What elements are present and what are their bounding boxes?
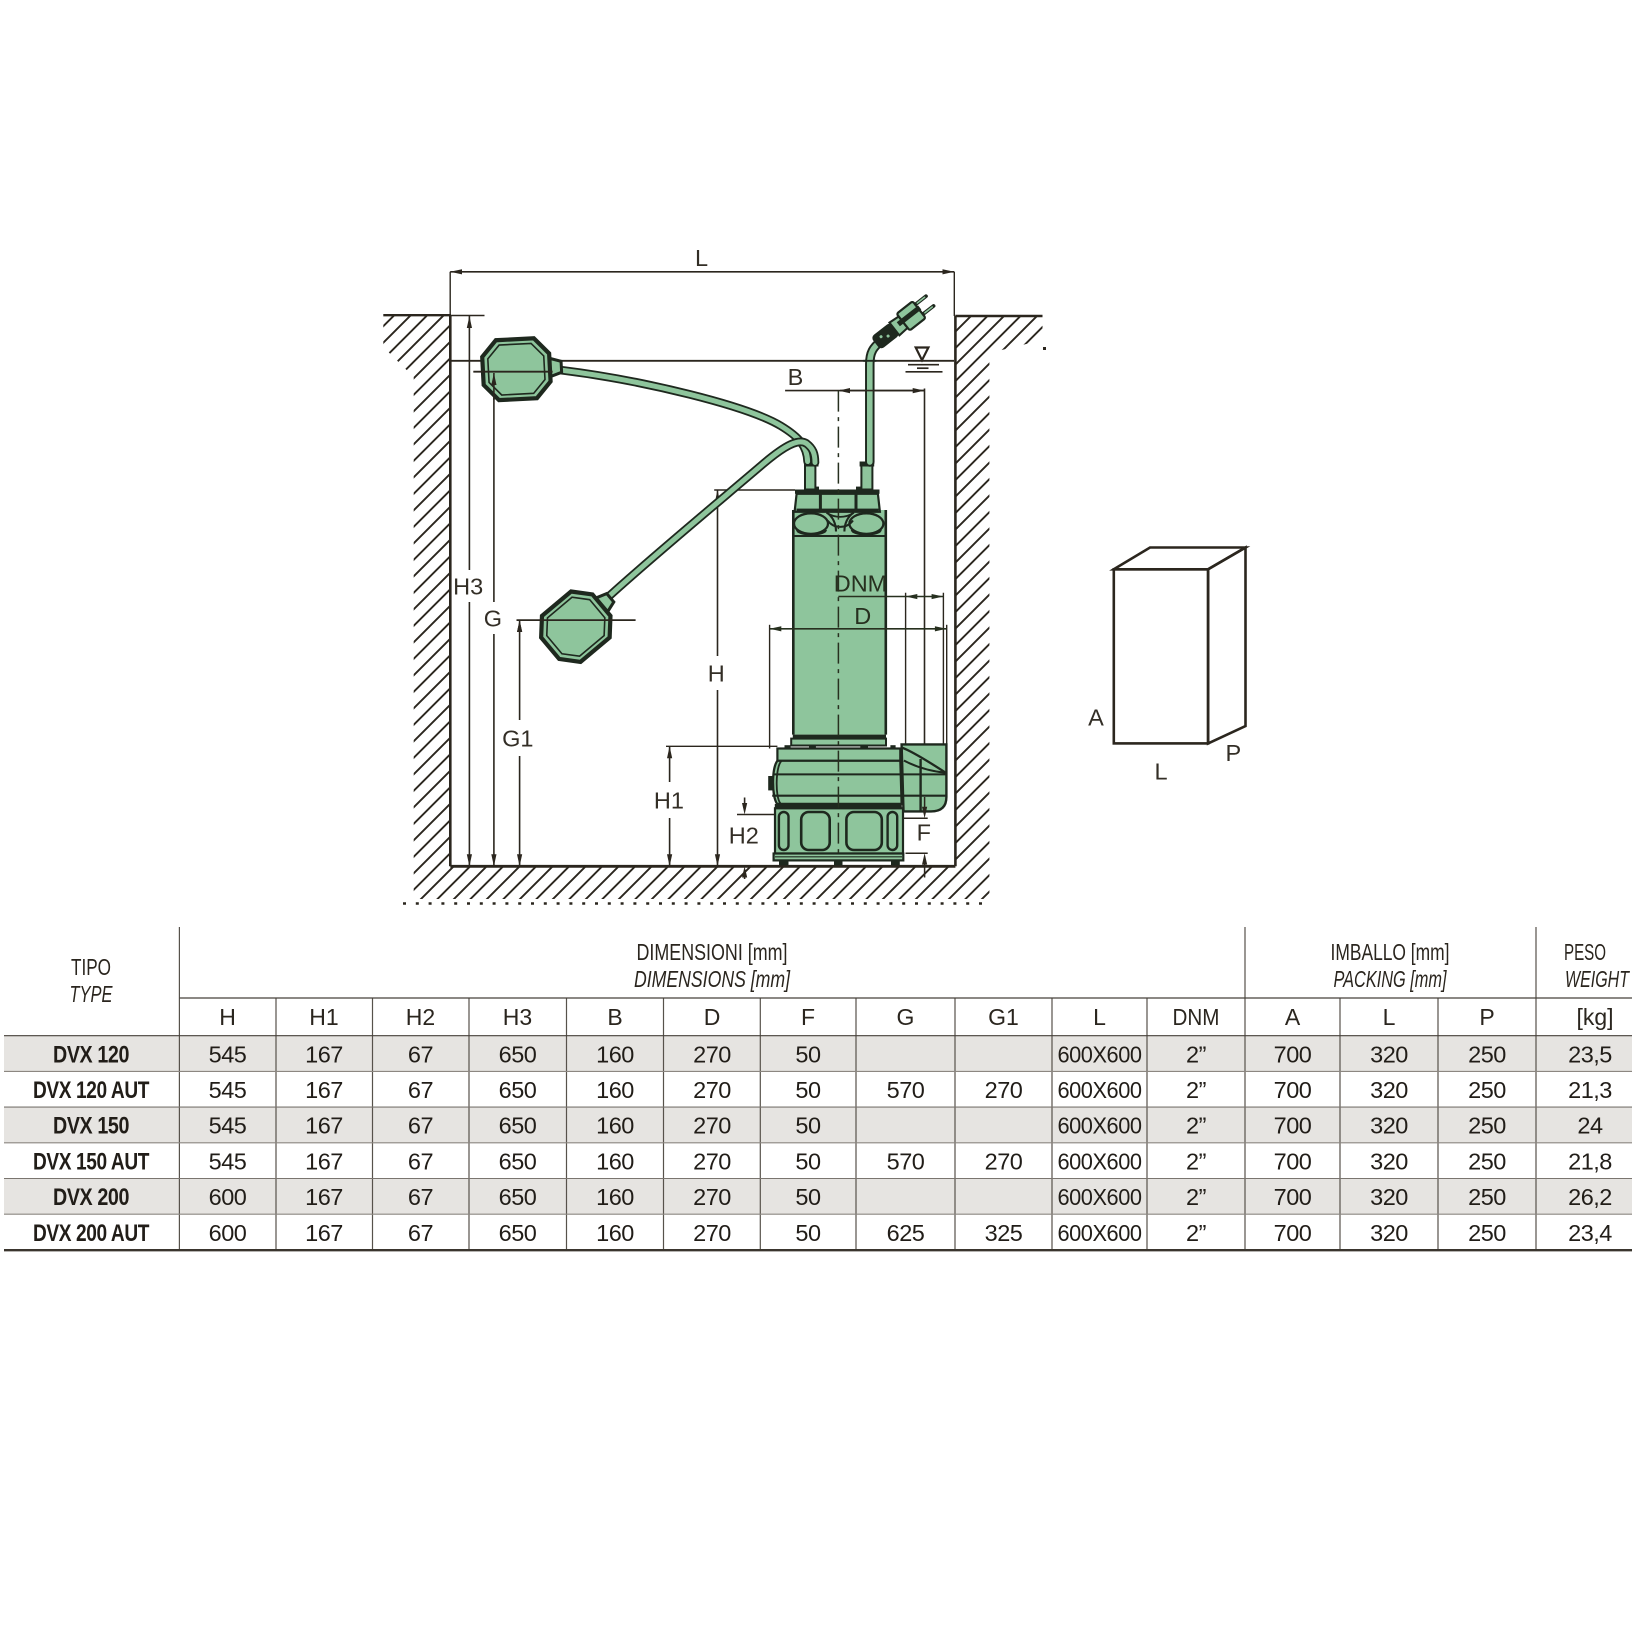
svg-text:167: 167 xyxy=(305,1077,343,1103)
svg-text:H: H xyxy=(219,1004,236,1030)
svg-text:G1: G1 xyxy=(502,726,533,752)
svg-text:67: 67 xyxy=(408,1041,433,1067)
svg-text:DVX 150: DVX 150 xyxy=(53,1113,129,1140)
svg-text:700: 700 xyxy=(1274,1041,1312,1067)
svg-text:24: 24 xyxy=(1577,1113,1603,1139)
svg-text:67: 67 xyxy=(408,1184,433,1210)
svg-text:L: L xyxy=(1093,1004,1106,1030)
svg-text:DNM: DNM xyxy=(834,571,888,597)
svg-text:DVX 200 AUT: DVX 200 AUT xyxy=(33,1220,149,1247)
svg-text:2”: 2” xyxy=(1186,1220,1206,1246)
svg-text:270: 270 xyxy=(693,1113,731,1139)
svg-text:700: 700 xyxy=(1274,1220,1312,1246)
svg-text:G: G xyxy=(484,606,502,632)
svg-text:160: 160 xyxy=(596,1184,634,1210)
svg-text:320: 320 xyxy=(1370,1077,1408,1103)
svg-text:160: 160 xyxy=(596,1041,634,1067)
svg-text:H3: H3 xyxy=(453,574,483,600)
svg-text:270: 270 xyxy=(693,1077,731,1103)
svg-text:B: B xyxy=(788,364,804,390)
svg-text:PESO: PESO xyxy=(1564,939,1606,965)
svg-text:50: 50 xyxy=(795,1148,821,1174)
svg-text:700: 700 xyxy=(1274,1113,1312,1139)
svg-text:67: 67 xyxy=(408,1220,433,1246)
svg-text:650: 650 xyxy=(499,1148,537,1174)
svg-text:21,8: 21,8 xyxy=(1568,1148,1612,1174)
svg-text:67: 67 xyxy=(408,1077,433,1103)
svg-text:H3: H3 xyxy=(503,1004,532,1030)
svg-text:50: 50 xyxy=(795,1184,821,1210)
svg-text:270: 270 xyxy=(693,1220,731,1246)
svg-text:600X600: 600X600 xyxy=(1058,1220,1142,1246)
svg-text:320: 320 xyxy=(1370,1220,1408,1246)
svg-text:L: L xyxy=(1383,1004,1396,1030)
svg-text:270: 270 xyxy=(693,1041,731,1067)
svg-text:650: 650 xyxy=(499,1041,537,1067)
svg-text:167: 167 xyxy=(305,1148,343,1174)
svg-text:P: P xyxy=(1479,1004,1494,1030)
svg-text:600X600: 600X600 xyxy=(1058,1113,1142,1139)
svg-text:B: B xyxy=(607,1004,622,1030)
svg-text:625: 625 xyxy=(887,1220,925,1246)
svg-text:F: F xyxy=(917,820,931,846)
svg-text:545: 545 xyxy=(209,1148,247,1174)
svg-text:H: H xyxy=(708,661,725,687)
svg-text:600X600: 600X600 xyxy=(1058,1184,1142,1210)
svg-text:DIMENSIONI [mm]: DIMENSIONI [mm] xyxy=(637,939,788,965)
svg-text:320: 320 xyxy=(1370,1148,1408,1174)
svg-text:700: 700 xyxy=(1274,1148,1312,1174)
svg-text:2”: 2” xyxy=(1186,1041,1206,1067)
svg-text:PACKING [mm]: PACKING [mm] xyxy=(1334,966,1447,992)
svg-text:21,3: 21,3 xyxy=(1568,1077,1612,1103)
svg-text:H2: H2 xyxy=(406,1004,435,1030)
svg-text:160: 160 xyxy=(596,1113,634,1139)
svg-text:A: A xyxy=(1285,1004,1301,1030)
svg-text:L: L xyxy=(1154,759,1167,785)
svg-text:600X600: 600X600 xyxy=(1058,1077,1142,1103)
svg-text:50: 50 xyxy=(795,1220,821,1246)
svg-text:325: 325 xyxy=(985,1220,1023,1246)
svg-text:WEIGHT: WEIGHT xyxy=(1565,966,1630,992)
svg-text:600: 600 xyxy=(209,1220,247,1246)
svg-text:D: D xyxy=(854,603,871,629)
svg-text:2”: 2” xyxy=(1186,1077,1206,1103)
svg-text:167: 167 xyxy=(305,1041,343,1067)
svg-text:545: 545 xyxy=(209,1041,247,1067)
svg-text:L: L xyxy=(695,245,708,271)
svg-text:DVX 200: DVX 200 xyxy=(53,1184,129,1211)
svg-text:2”: 2” xyxy=(1186,1148,1206,1174)
svg-text:650: 650 xyxy=(499,1184,537,1210)
svg-text:160: 160 xyxy=(596,1077,634,1103)
svg-text:DVX 120: DVX 120 xyxy=(53,1041,129,1068)
svg-text:250: 250 xyxy=(1468,1220,1506,1246)
svg-text:650: 650 xyxy=(499,1077,537,1103)
svg-text:DNM: DNM xyxy=(1173,1004,1220,1030)
svg-text:700: 700 xyxy=(1274,1184,1312,1210)
svg-text:G1: G1 xyxy=(988,1004,1019,1030)
svg-text:250: 250 xyxy=(1468,1041,1506,1067)
svg-text:270: 270 xyxy=(693,1184,731,1210)
svg-text:167: 167 xyxy=(305,1184,343,1210)
svg-text:IMBALLO [mm]: IMBALLO [mm] xyxy=(1331,939,1450,965)
svg-text:545: 545 xyxy=(209,1077,247,1103)
svg-text:600X600: 600X600 xyxy=(1058,1148,1142,1174)
svg-text:DVX 120 AUT: DVX 120 AUT xyxy=(33,1077,149,1104)
svg-text:[kg]: [kg] xyxy=(1576,1004,1613,1030)
svg-text:23,5: 23,5 xyxy=(1568,1041,1612,1067)
svg-text:2”: 2” xyxy=(1186,1184,1206,1210)
svg-text:167: 167 xyxy=(305,1113,343,1139)
svg-text:H2: H2 xyxy=(729,823,759,849)
svg-text:320: 320 xyxy=(1370,1041,1408,1067)
svg-text:160: 160 xyxy=(596,1220,634,1246)
svg-text:270: 270 xyxy=(985,1148,1023,1174)
svg-text:23,4: 23,4 xyxy=(1568,1220,1612,1246)
svg-text:50: 50 xyxy=(795,1077,821,1103)
svg-text:P: P xyxy=(1226,740,1242,766)
svg-text:G: G xyxy=(897,1004,915,1030)
svg-text:TIPO: TIPO xyxy=(71,954,111,980)
svg-text:320: 320 xyxy=(1370,1184,1408,1210)
svg-text:67: 67 xyxy=(408,1148,433,1174)
svg-text:H1: H1 xyxy=(654,788,684,814)
svg-text:250: 250 xyxy=(1468,1077,1506,1103)
svg-text:650: 650 xyxy=(499,1220,537,1246)
svg-text:26,2: 26,2 xyxy=(1568,1184,1612,1210)
svg-text:F: F xyxy=(801,1004,815,1030)
svg-text:600: 600 xyxy=(209,1184,247,1210)
svg-text:570: 570 xyxy=(887,1148,925,1174)
svg-text:270: 270 xyxy=(985,1077,1023,1103)
svg-text:570: 570 xyxy=(887,1077,925,1103)
svg-text:700: 700 xyxy=(1274,1077,1312,1103)
svg-text:167: 167 xyxy=(305,1220,343,1246)
svg-text:2”: 2” xyxy=(1186,1113,1206,1139)
svg-text:67: 67 xyxy=(408,1113,433,1139)
svg-text:DIMENSIONS [mm]: DIMENSIONS [mm] xyxy=(634,966,790,992)
svg-text:50: 50 xyxy=(795,1113,821,1139)
svg-text:H1: H1 xyxy=(309,1004,338,1030)
svg-text:545: 545 xyxy=(209,1113,247,1139)
svg-text:TYPE: TYPE xyxy=(70,981,113,1007)
svg-text:270: 270 xyxy=(693,1148,731,1174)
svg-text:160: 160 xyxy=(596,1148,634,1174)
svg-text:D: D xyxy=(704,1004,721,1030)
svg-text:600X600: 600X600 xyxy=(1058,1041,1142,1067)
svg-text:A: A xyxy=(1088,705,1104,731)
svg-text:50: 50 xyxy=(795,1041,821,1067)
svg-text:250: 250 xyxy=(1468,1148,1506,1174)
svg-text:DVX 150 AUT: DVX 150 AUT xyxy=(33,1148,149,1175)
svg-text:650: 650 xyxy=(499,1113,537,1139)
svg-text:250: 250 xyxy=(1468,1184,1506,1210)
svg-text:250: 250 xyxy=(1468,1113,1506,1139)
svg-text:320: 320 xyxy=(1370,1113,1408,1139)
